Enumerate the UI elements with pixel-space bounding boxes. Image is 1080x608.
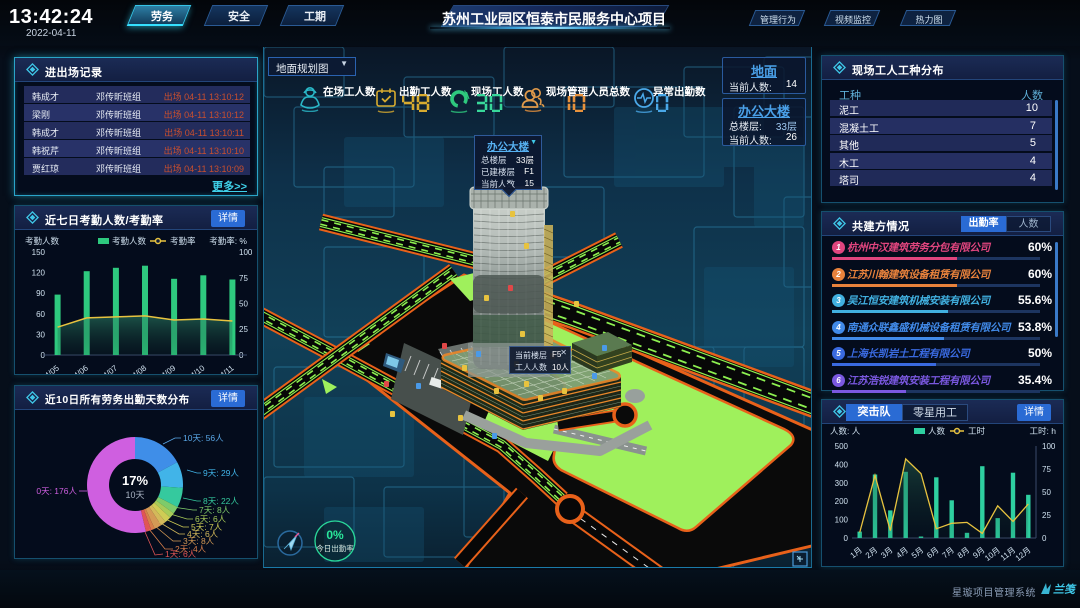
svg-text:考勤人数: 考勤人数 [112,236,147,246]
svg-text:人数: 人数 [928,426,946,436]
svg-text:50: 50 [1042,488,1051,497]
svg-text:4月: 4月 [895,545,910,560]
svg-text:30: 30 [36,330,45,339]
svg-text:25: 25 [1042,511,1051,520]
svg-text:120: 120 [32,269,46,278]
svg-text:考勤人数: 考勤人数 [25,236,60,246]
svg-text:04/06: 04/06 [69,363,91,374]
svg-text:60: 60 [36,310,45,319]
svg-text:100: 100 [835,516,849,525]
svg-text:04/11: 04/11 [215,363,236,374]
svg-text:04/09: 04/09 [156,363,178,374]
svg-text:10天: 56人: 10天: 56人 [183,433,224,443]
svg-text:04/08: 04/08 [127,363,149,374]
svg-text:100: 100 [1042,442,1056,451]
svg-text:今日出勤率: 今日出勤率 [316,543,354,553]
svg-text:0%: 0% [326,528,344,542]
svg-text:75: 75 [1042,465,1051,474]
svg-text:0天: 176人: 0天: 176人 [36,486,77,496]
svg-text:3月: 3月 [879,545,894,560]
svg-text:9天: 29人: 9天: 29人 [203,468,239,478]
svg-text:1月: 1月 [849,545,864,560]
svg-text:人数: 人: 人数: 人 [830,426,861,436]
svg-text:0: 0 [844,534,849,543]
svg-text:0: 0 [1042,534,1047,543]
svg-text:04/10: 04/10 [185,363,207,374]
svg-text:考勤率: 考勤率 [170,236,196,246]
svg-text:04/07: 04/07 [98,363,120,374]
svg-text:8月: 8月 [956,545,971,560]
svg-text:04/05: 04/05 [40,363,62,374]
svg-text:7月: 7月 [941,545,956,560]
svg-text:150: 150 [32,248,46,257]
svg-text:17%: 17% [122,473,148,488]
svg-text:工时: h: 工时: h [1030,426,1057,436]
svg-text:2月: 2月 [864,545,879,560]
svg-text:400: 400 [835,460,849,469]
svg-text:考勤率: %: 考勤率: % [209,236,247,246]
svg-text:12月: 12月 [1014,545,1033,563]
svg-text:1天: 6人: 1天: 6人 [165,549,197,558]
svg-text:25: 25 [239,325,248,334]
svg-text:工时: 工时 [968,426,986,436]
svg-text:5月: 5月 [910,545,925,560]
svg-text:50: 50 [239,300,248,309]
svg-text:100: 100 [239,248,253,257]
svg-text:6月: 6月 [925,545,940,560]
svg-text:10天: 10天 [125,490,144,500]
svg-text:75: 75 [239,274,248,283]
svg-text:300: 300 [835,479,849,488]
svg-text:90: 90 [36,289,45,298]
svg-text:200: 200 [835,497,849,506]
svg-text:500: 500 [835,442,849,451]
svg-text:兰笺: 兰笺 [1053,583,1077,596]
